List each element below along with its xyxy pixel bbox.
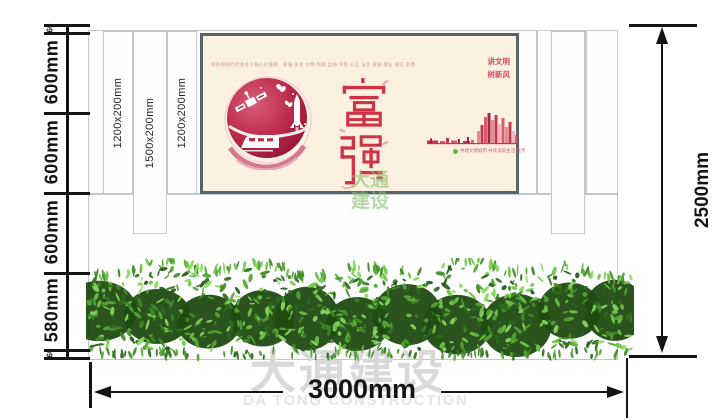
pillar-label: 1200x200mm bbox=[176, 77, 188, 148]
dim-label-total-height: 2500mm bbox=[692, 152, 714, 228]
pillar-left-3: 1200x200mm bbox=[167, 31, 197, 194]
pillar-left-1: 1200x200mm bbox=[103, 31, 133, 194]
dim-label-600-1: 600mm bbox=[42, 40, 63, 105]
corner-slogan-line1: 讲文明 bbox=[488, 56, 511, 69]
dim-ext-left bbox=[89, 362, 92, 408]
dim-bottom-line-right bbox=[441, 391, 609, 394]
pillar-label: 1200x200mm bbox=[112, 77, 124, 148]
hedge-plants bbox=[86, 258, 634, 362]
arrow-right-icon bbox=[607, 386, 624, 398]
pillar-right-long bbox=[551, 31, 585, 234]
wall-divider-right bbox=[536, 31, 538, 194]
dim-tick bbox=[44, 192, 90, 195]
dim-label-600-2: 600mm bbox=[42, 120, 63, 185]
dim-left-line bbox=[66, 24, 69, 357]
poster-corner-slogan: 讲文明 树新风 bbox=[488, 56, 511, 82]
dim-bottom-line-left bbox=[98, 391, 283, 394]
arrow-left-icon bbox=[94, 386, 111, 398]
dim-label-580: 580mm bbox=[42, 278, 63, 343]
dim-ext-right bbox=[626, 358, 629, 418]
dim-tick bbox=[629, 355, 697, 358]
logo-watermark-line2: 建设 bbox=[347, 192, 393, 213]
dim-right-line bbox=[661, 40, 664, 340]
pillar-left-2: 1500x200mm bbox=[133, 31, 167, 234]
dim-tick bbox=[44, 112, 90, 115]
wall-divider-right-2 bbox=[585, 31, 587, 194]
papercut-circle-illustration bbox=[221, 74, 313, 170]
dim-label-total-width: 3000mm bbox=[283, 376, 441, 403]
dim-tick bbox=[44, 272, 90, 275]
dim-label-600-3: 600mm bbox=[42, 200, 63, 265]
corner-slogan-line2: 树新风 bbox=[488, 69, 511, 82]
poster-top-slogan: 培育和践行社会主义核心价值观 富强 民主 文明 和谐 自由 平等 公正 法治 爱… bbox=[211, 62, 415, 68]
skyline-graphic bbox=[427, 112, 519, 146]
arrow-up-icon bbox=[656, 27, 668, 44]
pillar-label: 1500x200mm bbox=[144, 97, 156, 168]
poster-footer: 共建文明城市 共享美好生活 宣传 bbox=[453, 148, 526, 154]
logo-watermark: 大通 建设 bbox=[347, 171, 393, 212]
design-drawing-canvas: 大通建设 DA TONG CONSTRUCTION 1200x200mm 150… bbox=[0, 0, 720, 420]
location-dot-icon bbox=[453, 149, 458, 154]
logo-watermark-line1: 大通 bbox=[347, 171, 393, 192]
poster-footer-note: 共建文明城市 共享美好生活 宣传 bbox=[460, 148, 526, 154]
arrow-down-icon bbox=[656, 336, 668, 353]
dim-label-60-top: 60 bbox=[46, 24, 55, 33]
dim-label-60-bottom: 60 bbox=[46, 349, 55, 358]
